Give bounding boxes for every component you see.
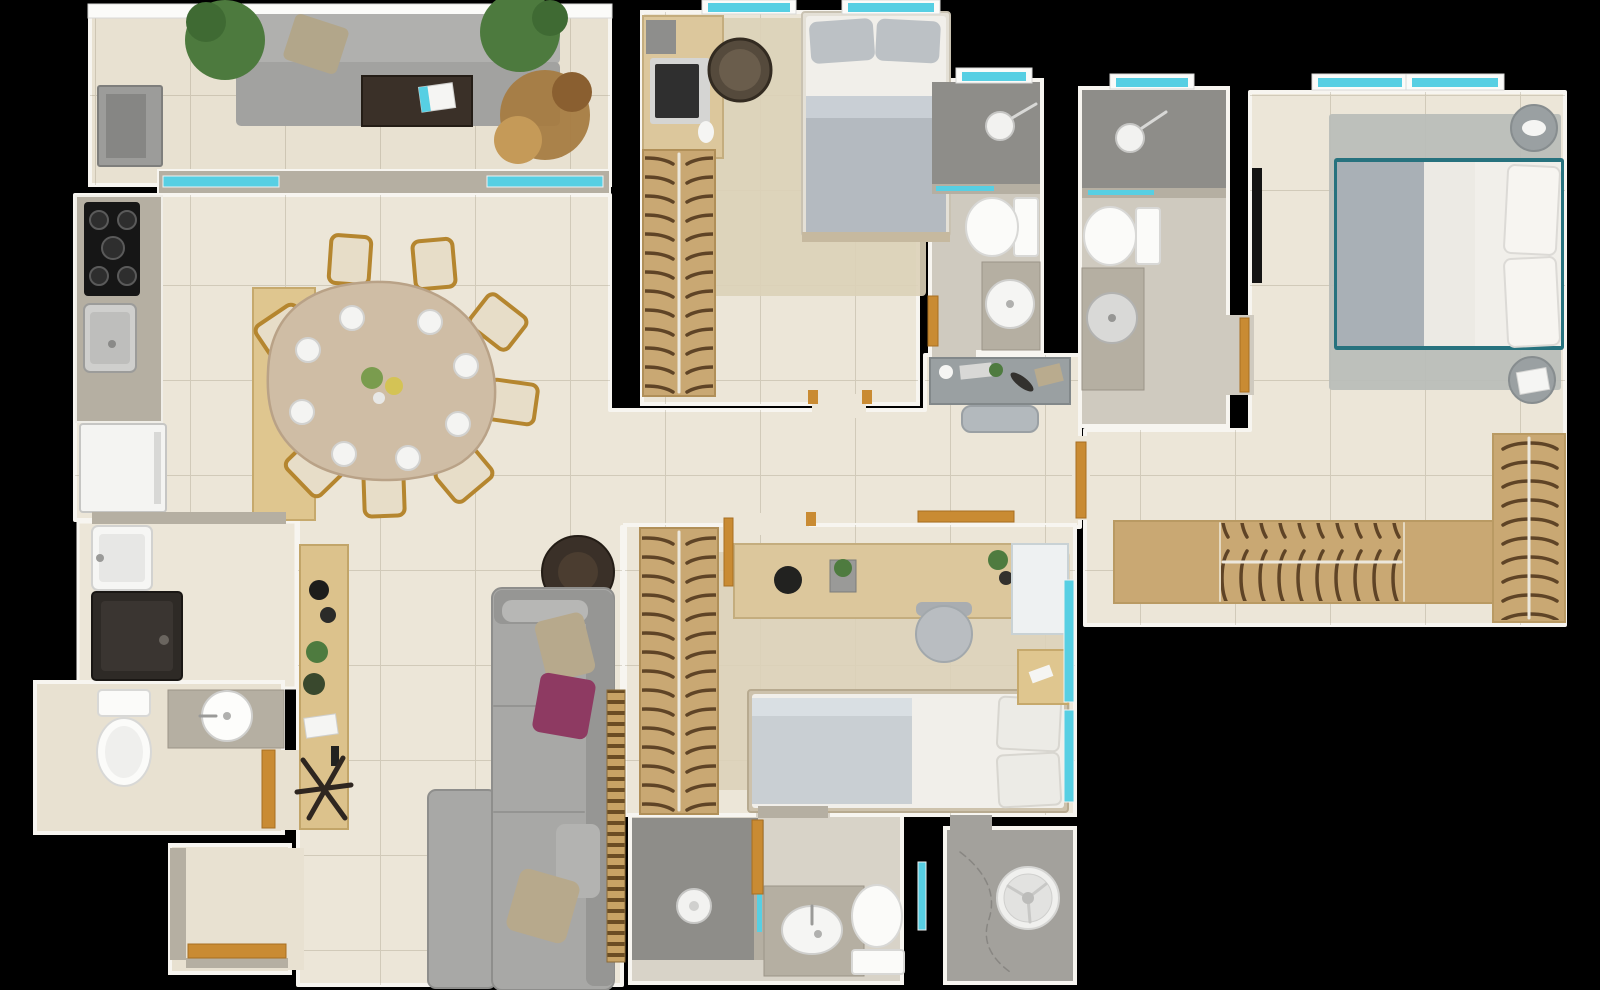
bridge-bedroom2-door bbox=[723, 513, 809, 535]
powder-toilet-tank bbox=[98, 690, 150, 716]
toilet2-tank bbox=[1136, 208, 1160, 264]
burner-2 bbox=[118, 211, 136, 229]
bathroom2-door bbox=[1240, 318, 1249, 392]
toilet1-bowl bbox=[966, 198, 1018, 256]
floor-plan-stage bbox=[0, 0, 1600, 990]
bridge-bedroom1-door bbox=[812, 394, 866, 418]
bathroom1-door bbox=[928, 296, 938, 346]
sink2-drain bbox=[1108, 314, 1116, 322]
sideboard-book bbox=[304, 714, 338, 738]
dining-chair-2 bbox=[412, 238, 456, 289]
dried-plant-2 bbox=[494, 116, 542, 164]
entry-granite-strip bbox=[170, 848, 186, 960]
floor-plan-shapes bbox=[35, 0, 1565, 990]
fridge bbox=[80, 424, 166, 512]
bridge-entry-living bbox=[284, 848, 304, 970]
centerpiece-plant bbox=[361, 367, 383, 389]
burner-5 bbox=[118, 267, 136, 285]
desk2-plant-1 bbox=[834, 559, 852, 577]
ac-unit-vent bbox=[106, 94, 146, 158]
desk-mouse bbox=[698, 121, 714, 143]
bathroom2-window bbox=[1116, 78, 1188, 87]
showerhead-3-center bbox=[689, 901, 699, 911]
showerhead-1 bbox=[986, 112, 1014, 140]
master-bed-sheet bbox=[1424, 162, 1480, 346]
bedroom2-door-jamb bbox=[806, 512, 816, 526]
plate-7 bbox=[290, 400, 314, 424]
master-hall-door bbox=[1076, 442, 1086, 518]
balcony-plant-right-2 bbox=[532, 0, 568, 36]
kitchen-faucet bbox=[108, 340, 116, 348]
desk-chair-seat bbox=[916, 606, 972, 662]
master-window-1 bbox=[1318, 78, 1402, 87]
service-window bbox=[918, 862, 926, 930]
sideboard-plant-1 bbox=[306, 641, 328, 663]
bed1-blanket-fold bbox=[806, 96, 946, 118]
bridge-service-door bbox=[950, 815, 992, 835]
floor-plan-canvas bbox=[0, 0, 1600, 990]
plate-5 bbox=[396, 446, 420, 470]
sink3-drain bbox=[814, 930, 822, 938]
toilet3-bowl bbox=[852, 885, 902, 947]
laundry-threshold bbox=[92, 512, 286, 524]
shower2-glass bbox=[1088, 190, 1154, 195]
bed1-pillow-2 bbox=[875, 18, 941, 63]
centerpiece-glass bbox=[373, 392, 385, 404]
washing-machine-knob bbox=[159, 635, 169, 645]
entry-threshold bbox=[186, 958, 288, 968]
master-pillow-1 bbox=[1504, 165, 1561, 256]
dried-plant-3 bbox=[552, 72, 592, 112]
plate-8 bbox=[296, 338, 320, 362]
floor-fan-center bbox=[1022, 892, 1034, 904]
sill-window-glass-2 bbox=[487, 176, 603, 187]
laundry-faucet bbox=[96, 554, 104, 562]
slat-panel bbox=[607, 690, 625, 962]
laundry-basin-inner bbox=[99, 534, 145, 582]
bed2-blanket-fold bbox=[752, 698, 912, 716]
sink1-drain bbox=[1006, 300, 1014, 308]
master-bed-blanket bbox=[1337, 162, 1429, 346]
plate-4 bbox=[446, 412, 470, 436]
shower2-tiles bbox=[1082, 90, 1226, 188]
dining-chair-1 bbox=[328, 235, 371, 286]
sideboard-bowl-1 bbox=[309, 580, 329, 600]
sofa-pillow-purple bbox=[531, 672, 597, 741]
bedroom2-window-2 bbox=[1064, 710, 1074, 802]
bedroom1-door-jamb-1 bbox=[808, 390, 818, 404]
bathroom1-window bbox=[962, 72, 1026, 81]
bedroom2-door bbox=[724, 518, 733, 586]
hall-closet-door bbox=[918, 511, 1014, 522]
sill-window-glass-1 bbox=[163, 176, 279, 187]
powder-door bbox=[262, 750, 275, 828]
entry-door bbox=[188, 944, 286, 958]
bed1-pillow-1 bbox=[809, 18, 876, 64]
toilet2-bowl bbox=[1084, 207, 1136, 265]
master-nightstand-1-item bbox=[1522, 120, 1546, 136]
powder-sink-drain bbox=[223, 712, 231, 720]
plate-3 bbox=[454, 354, 478, 378]
bedroom2-window-1 bbox=[1064, 580, 1074, 702]
plate-2 bbox=[418, 310, 442, 334]
burner-4 bbox=[90, 267, 108, 285]
bedroom1-window-1 bbox=[708, 3, 790, 12]
kitchen-sink-basin bbox=[90, 312, 130, 364]
bedroom2-shelf-unit bbox=[1012, 544, 1068, 634]
showerhead-2 bbox=[1116, 124, 1144, 152]
centerpiece-fruit bbox=[385, 377, 403, 395]
shower1-tiles bbox=[932, 82, 1040, 184]
bedroom1-window-2 bbox=[848, 3, 934, 12]
master-window-2 bbox=[1412, 78, 1498, 87]
master-nightstand-2-book bbox=[1516, 368, 1549, 395]
round-side-table-top bbox=[558, 552, 598, 592]
toilet3-tank bbox=[852, 950, 904, 974]
master-pillow-2 bbox=[1504, 257, 1561, 348]
hall-vanity-plant bbox=[989, 363, 1003, 377]
powder-toilet-seat bbox=[105, 726, 143, 778]
desk2-plant-2 bbox=[988, 550, 1008, 570]
bedroom1-door-jamb-2 bbox=[862, 390, 872, 404]
desk2-bowl bbox=[774, 566, 802, 594]
burner-3 bbox=[102, 237, 124, 259]
burner-1 bbox=[90, 211, 108, 229]
sofa-chaise bbox=[428, 790, 496, 988]
bathroom3-threshold bbox=[758, 806, 828, 818]
shower1-glass bbox=[936, 186, 994, 191]
sideboard-plant-2 bbox=[303, 673, 325, 695]
hall-vanity-item bbox=[939, 365, 953, 379]
plate-1 bbox=[340, 306, 364, 330]
wire-basket-inner bbox=[719, 49, 761, 91]
desk-speaker bbox=[646, 20, 676, 54]
bed2-pillow-2 bbox=[997, 752, 1062, 807]
sideboard-bowl-2 bbox=[320, 607, 336, 623]
bathroom3-door bbox=[752, 820, 763, 894]
coffee-table bbox=[362, 76, 472, 126]
laptop-keyboard bbox=[655, 64, 699, 118]
balcony-plant-left-2 bbox=[186, 2, 226, 42]
bed1-footboard bbox=[802, 232, 950, 242]
desk2-pot bbox=[999, 571, 1013, 585]
hall-pouf bbox=[962, 406, 1038, 432]
plate-6 bbox=[332, 442, 356, 466]
master-tv bbox=[1252, 168, 1262, 283]
fridge-handle bbox=[154, 432, 161, 504]
